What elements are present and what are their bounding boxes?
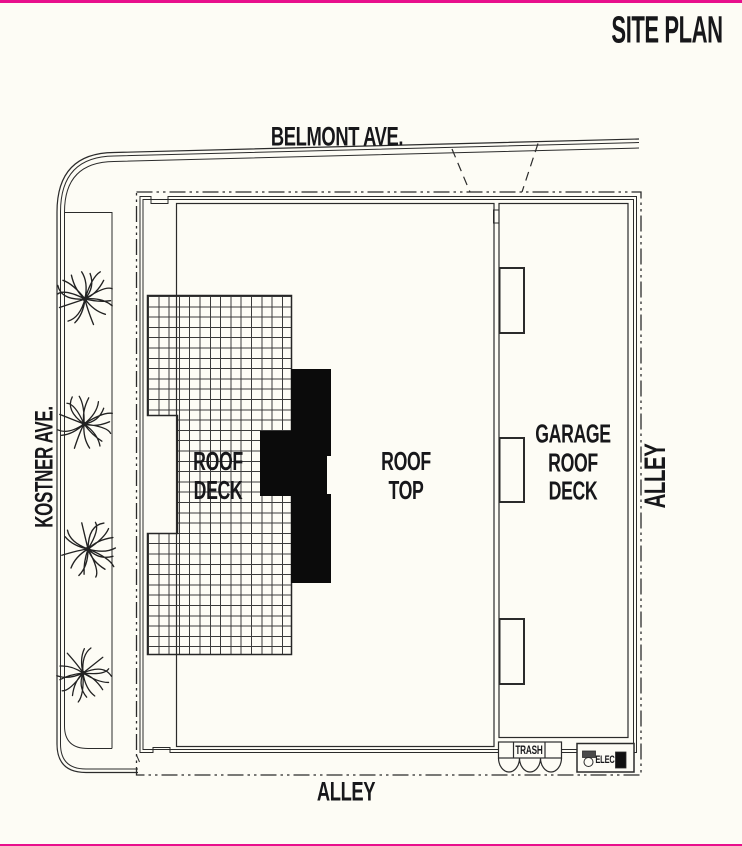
garage-roof-deck-label-line: ROOF [535,448,610,477]
tree-icon [60,520,117,579]
street-label-belmont: BELMONT AVE. [271,122,403,153]
street-label-alley-south: ALLEY [317,777,375,808]
roof-top-label-line: TOP [381,476,431,505]
roof-deck-label: ROOF DECK [193,447,243,505]
roof-core-west-wing [260,431,291,496]
street-label-alley-east: ALLEY [639,444,673,509]
garage-stair-boxes [500,268,525,684]
roof-core-notch [327,456,332,494]
garage-roof-deck-label-line: DECK [535,476,610,505]
trash-label: TRASH [515,743,542,757]
elec-label: ELEC [595,754,614,766]
roof-deck-label-line: DECK [193,476,243,505]
tree-icon [58,272,112,325]
page-title: SITE PLAN [611,10,722,53]
sheet-border-top [0,0,742,3]
roof-core-main [291,369,331,583]
street-label-kostner: KOSTNER AVE. [31,406,60,528]
roof-top-label: ROOF TOP [381,447,431,505]
garage-roof-deck-label: GARAGE ROOF DECK [535,419,610,505]
roof-top-label-line: ROOF [381,447,431,476]
garage-roof-deck-label-line: GARAGE [535,419,610,448]
site-plan-canvas: SITE PLAN BELMONT AVE. KOSTNER AVE. ALLE… [0,0,742,846]
roof-deck-label-line: ROOF [193,447,243,476]
